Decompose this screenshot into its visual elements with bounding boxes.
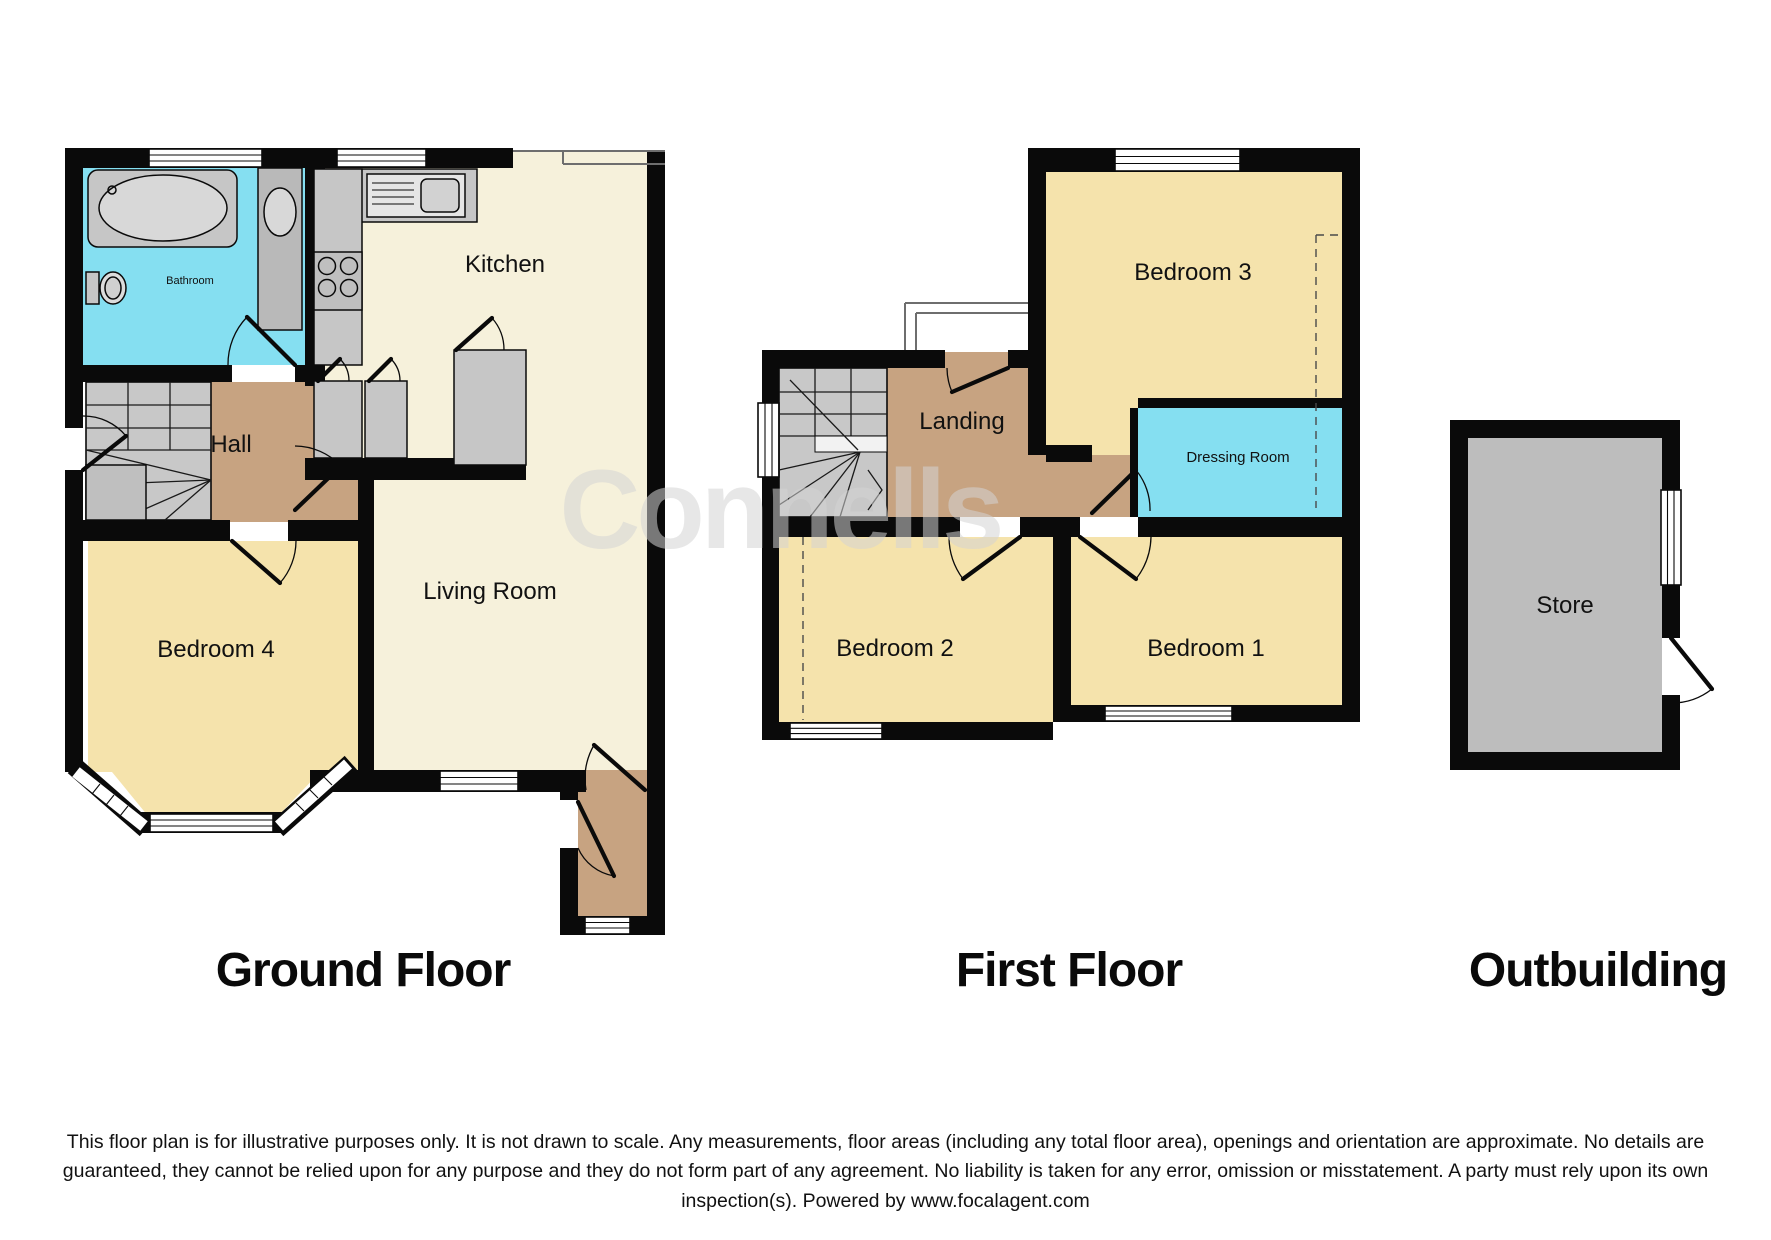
bedroom2-label: Bedroom 2 (836, 635, 953, 662)
hall-label: Hall (210, 431, 251, 458)
porch-area (578, 770, 647, 916)
bedroom2-window (790, 723, 882, 739)
porch-window (585, 917, 630, 934)
bedroom3-lobe (1046, 398, 1138, 445)
ground-left-wall-upper (65, 148, 83, 428)
bedroom3-lower-wall (1046, 445, 1092, 462)
ground-left-wall-lower (65, 470, 83, 772)
kitchen-cupboard-a (314, 381, 362, 458)
landing-top-wall-left (762, 350, 945, 368)
hall-living-wall (358, 480, 374, 770)
store-left-wall (1450, 420, 1468, 770)
floorplan-page: Bathroom Kitchen Hall Bedroom 4 Living R… (0, 0, 1771, 1240)
living-room-window (440, 771, 518, 791)
bedroom3-window (1115, 149, 1240, 171)
kitchen-window (337, 149, 426, 167)
landing-label: Landing (919, 408, 1004, 435)
disclaimer-text: This floor plan is for illustrative purp… (0, 1128, 1771, 1216)
kitchen-sink (367, 174, 465, 217)
store-window (1661, 490, 1681, 585)
outbuilding-plan: Store (1450, 420, 1712, 770)
store-right-wall-bottom (1662, 695, 1680, 770)
landing-door-recess (945, 352, 1008, 368)
ground-top-wall (65, 148, 513, 168)
flat-roof-outline (905, 303, 1028, 350)
floorplan-drawing: Bathroom Kitchen Hall Bedroom 4 Living R… (0, 0, 1771, 1240)
kitchen-cupboard-b (365, 381, 407, 458)
bedroom1-label: Bedroom 1 (1147, 635, 1264, 662)
hall-bedroom4-wall-right (288, 520, 360, 541)
dressing-left-wall (1130, 408, 1138, 517)
landing-bottom-wall-c (1138, 517, 1360, 537)
bathroom-hall-wall-left (83, 365, 232, 382)
porch-left-wall-top (560, 792, 578, 800)
landing-bottom-wall-b (1020, 517, 1080, 537)
bathroom-hall-wall-right (295, 365, 305, 382)
dressing-top-wall (1138, 398, 1342, 408)
store-door (1671, 638, 1712, 703)
living-room-label: Living Room (423, 578, 556, 605)
store-bottom-wall (1450, 752, 1680, 770)
bathtub (88, 170, 237, 247)
kitchen-label: Kitchen (465, 251, 545, 278)
store-label: Store (1536, 592, 1593, 619)
first-floor-title: First Floor (956, 944, 1183, 997)
toilet (86, 272, 126, 304)
store-right-wall-top (1662, 420, 1680, 490)
store-top-wall (1450, 420, 1680, 438)
bedroom4-label: Bedroom 4 (157, 636, 274, 663)
first-floor-plan: Landing Bedroom 3 Dressing Room Bedroom … (758, 148, 1360, 740)
bedroom3-label: Bedroom 3 (1134, 259, 1251, 286)
hall-bedroom4-wall-left (65, 520, 230, 541)
ground-floor-title: Ground Floor (216, 944, 511, 997)
bedroom-divider-wall (1053, 537, 1071, 722)
vanity-basin (258, 168, 302, 330)
bathroom-window (149, 149, 262, 167)
first-right-wall (1342, 148, 1360, 722)
dressing-room-label: Dressing Room (1186, 449, 1289, 466)
connells-watermark: Connells (560, 447, 1001, 572)
hob (314, 252, 362, 310)
bedroom3-left-wall (1028, 148, 1046, 455)
understairs-cupboard (86, 465, 146, 520)
bathroom-label: Bathroom (166, 275, 214, 287)
kitchen-tall-unit (454, 350, 526, 465)
outbuilding-title: Outbuilding (1469, 944, 1727, 997)
store-right-wall-mid (1662, 585, 1680, 638)
landing-corridor-area (1028, 455, 1130, 517)
landing-top-wall-right (1008, 350, 1028, 368)
bedroom1-window (1105, 706, 1232, 721)
first-left-wall-upper (762, 350, 779, 403)
